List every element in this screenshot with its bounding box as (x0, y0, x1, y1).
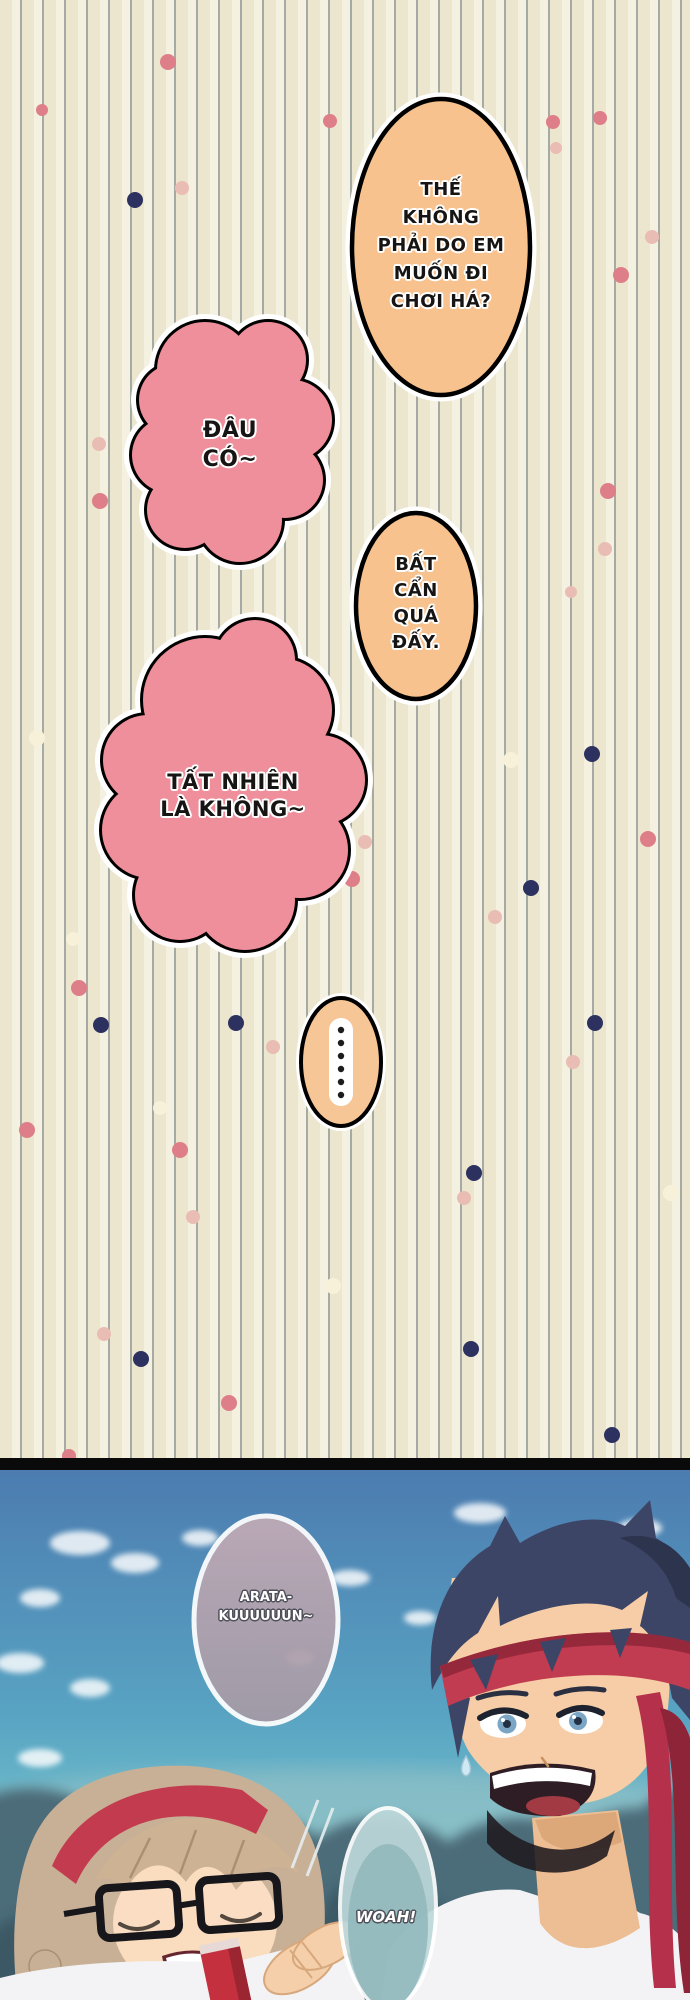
speech-bubble-ellipsis (301, 998, 381, 1126)
speech-bubbles-layer (0, 0, 690, 1460)
bubble-1-text: THẾKHÔNG PHẢI DO EMMUỐN ĐI CHƠI HÁ? (346, 176, 536, 316)
bubble-3-text: BẤTCẨN QUÁĐẤY. (346, 552, 486, 656)
speech-bubble-woah (340, 1808, 436, 2000)
panel-divider (0, 1458, 690, 1472)
bubble-woah-text: WOAH! (336, 1908, 436, 1926)
bubble-arata-text: ARATA-KUUUUUUN~ (196, 1588, 336, 1626)
bubble-4-text: TẤT NHIÊNLÀ KHÔNG~ (108, 769, 358, 823)
manga-page: THẾKHÔNG PHẢI DO EMMUỐN ĐI CHƠI HÁ? ĐÂUC… (0, 0, 690, 2000)
bubble-2-text: ĐÂUCÓ~ (150, 416, 310, 474)
